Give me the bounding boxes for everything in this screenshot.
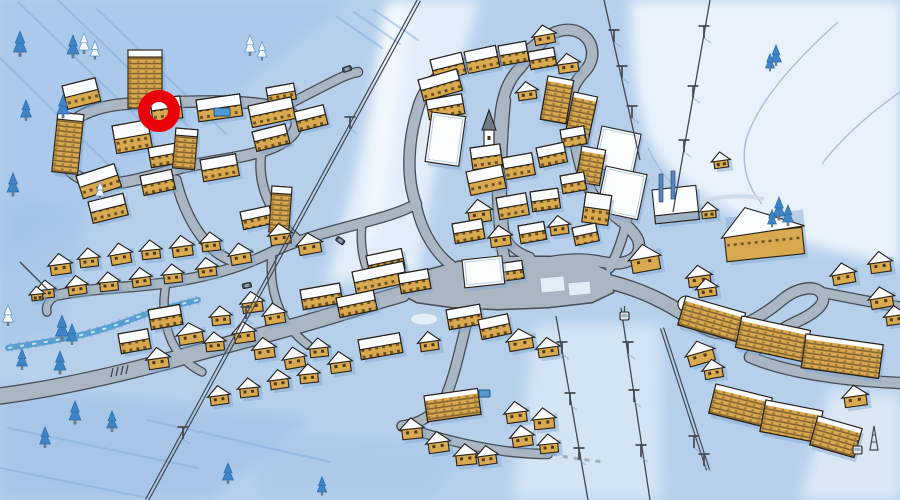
hall-building bbox=[424, 112, 468, 171]
ski-resort-map bbox=[0, 0, 900, 500]
gondola-pillar bbox=[659, 174, 663, 202]
pool bbox=[214, 108, 230, 116]
hall-building bbox=[462, 256, 508, 292]
apartment-block bbox=[581, 192, 614, 230]
traffic-island bbox=[411, 314, 437, 325]
pool bbox=[479, 390, 490, 397]
parking-lot bbox=[540, 276, 565, 293]
parking-lot bbox=[568, 281, 591, 296]
tower-building bbox=[172, 128, 201, 174]
gondola-pillar bbox=[671, 171, 675, 199]
map-canvas bbox=[0, 0, 900, 500]
